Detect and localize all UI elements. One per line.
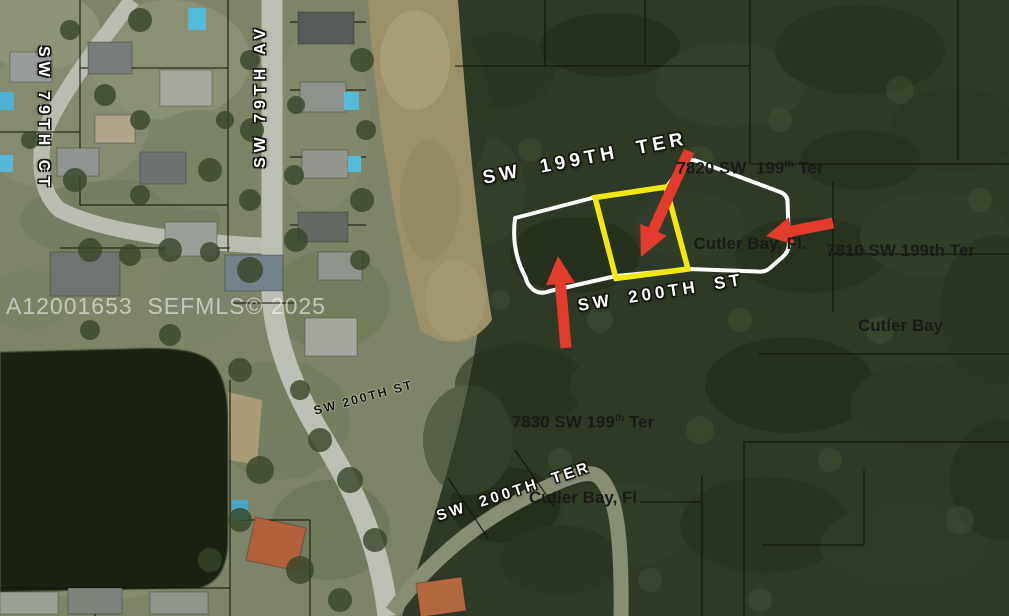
street-label-sw-79th-ct: SW 79TH CT bbox=[34, 46, 52, 191]
address-label-7810: 7810 SW 199th Ter Cutler Bay bbox=[798, 188, 1003, 388]
mls-watermark: A12001653 SEFMLS© 2025 bbox=[6, 293, 326, 320]
arrow-7830 bbox=[546, 256, 575, 349]
address-line1: 7830 SW 199th Ter bbox=[478, 406, 688, 435]
ordinal-suffix: th bbox=[784, 159, 793, 170]
address-line2: Cutler Bay bbox=[798, 313, 1003, 338]
address-label-7830: 7830 SW 199th Ter Cutler Bay, Fl bbox=[478, 356, 688, 560]
address-line1: 7820 SW 199th Ter bbox=[645, 152, 855, 181]
address-line1: 7810 SW 199th Ter bbox=[798, 238, 1003, 263]
address-text: 7820 SW 199 bbox=[676, 159, 784, 178]
address-text: 7830 SW 199 bbox=[512, 413, 615, 432]
ordinal-suffix: th bbox=[615, 413, 624, 424]
address-line2: Cutler Bay, Fl bbox=[478, 485, 688, 510]
address-text: Ter bbox=[624, 413, 654, 432]
street-label-sw-79th-av: SW 79TH AV bbox=[252, 24, 270, 168]
aerial-map: SW 199TH TER SW 200TH ST SW 200TH TER SW… bbox=[0, 0, 1009, 616]
address-text: Ter bbox=[794, 159, 824, 178]
